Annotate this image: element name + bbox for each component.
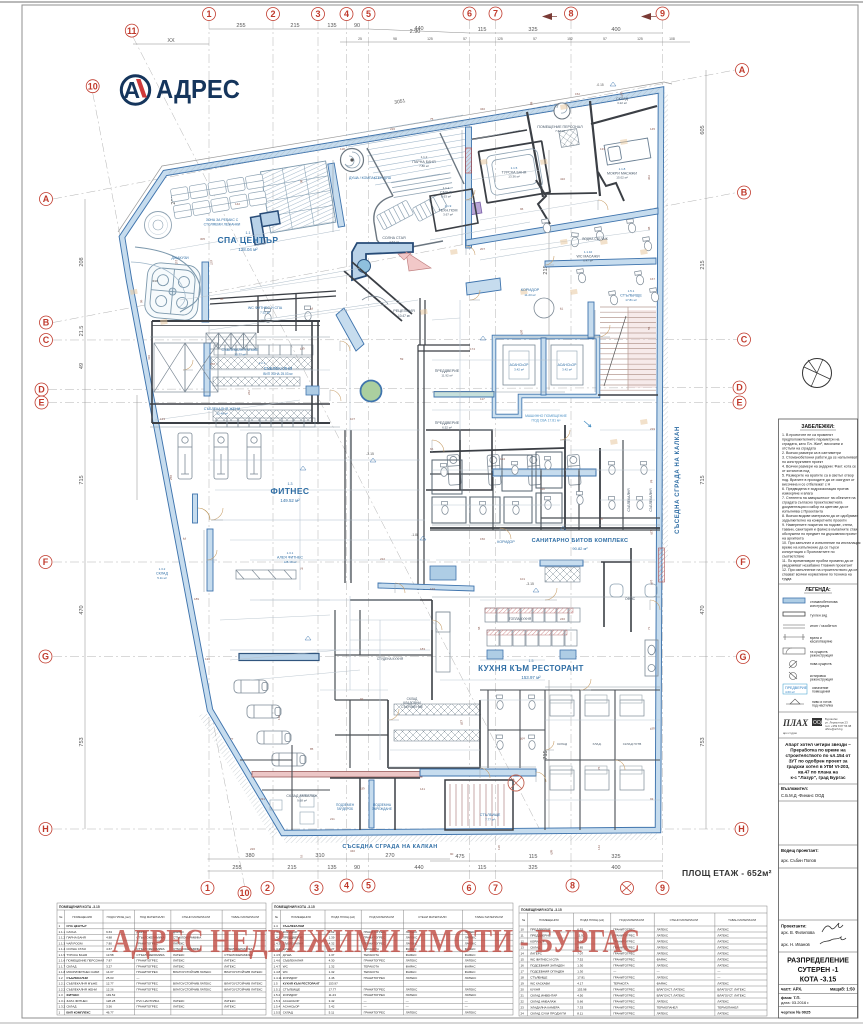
svg-text:605: 605	[700, 125, 706, 134]
svg-text:ВИП КОМПЛЕКС: ВИП КОМПЛЕКС	[66, 1010, 91, 1014]
svg-text:152: 152	[567, 37, 573, 41]
svg-text:1.30: 1.30	[577, 963, 583, 967]
svg-text:ФИТНЕС: ФИТНЕС	[66, 993, 80, 997]
svg-text:2: 2	[270, 9, 275, 19]
svg-text:715: 715	[700, 475, 706, 484]
svg-text:3.56: 3.56	[106, 1005, 112, 1009]
svg-text:МОКРИ/ФИТНЕС КАБИ: МОКРИ/ФИТНЕС КАБИ	[66, 970, 99, 974]
svg-text:ФАЯНС: ФАЯНС	[465, 964, 477, 968]
svg-text:арх. Събин Попов: арх. Събин Попов	[781, 858, 817, 863]
svg-text:ГРАНИТОГРЕС: ГРАНИТОГРЕС	[364, 1010, 386, 1014]
svg-text:КУХНЯ: КУХНЯ	[530, 987, 540, 991]
svg-text:149.52: 149.52	[106, 993, 116, 997]
svg-text:46.77: 46.77	[106, 1010, 114, 1014]
svg-text:23: 23	[521, 1005, 525, 1009]
svg-text:КОРИДОР: КОРИДОР	[497, 540, 515, 544]
svg-text:3.22 м²: 3.22 м²	[617, 101, 627, 105]
svg-text:1.3.2: 1.3.2	[59, 1005, 66, 1009]
svg-text:ЛАТЕКС: ЛАТЕКС	[406, 987, 418, 991]
svg-text:ПОМЕЩЕНИЯ: ПОМЕЩЕНИЯ	[72, 915, 92, 919]
svg-text:1.1.8: 1.1.8	[59, 970, 66, 974]
svg-text:СЪБЛЕКАЛНЯ ЖЕНИ: СЪБЛЕКАЛНЯ ЖЕНИ	[66, 987, 96, 991]
svg-text:152: 152	[575, 92, 580, 96]
svg-text:92: 92	[360, 697, 364, 701]
svg-text:255: 255	[232, 865, 241, 871]
svg-text:—: —	[406, 999, 409, 1003]
svg-text:уведомяват незабавно Главния п: уведомяват незабавно Главния проектант	[782, 564, 853, 568]
svg-text:215: 215	[287, 865, 296, 871]
svg-text:съответствие: съответствие	[782, 555, 804, 559]
svg-text:135: 135	[327, 23, 336, 29]
svg-text:№: №	[275, 915, 278, 919]
svg-text:1.2.1: 1.2.1	[59, 982, 66, 986]
svg-text:ЛАТЕКС: ЛАТЕКС	[717, 981, 729, 985]
svg-text:400: 400	[611, 27, 620, 33]
svg-text:6: 6	[467, 9, 472, 19]
svg-text:ПОД СВА 17.81 м²: ПОД СВА 17.81 м²	[532, 418, 562, 422]
svg-text:255: 255	[236, 23, 245, 29]
svg-text:2. Всички размери са в сантиме: 2. Всички размери са в сантиметри	[782, 451, 841, 455]
svg-text:17: 17	[521, 969, 525, 973]
svg-text:55: 55	[647, 326, 651, 330]
svg-text:3.27: 3.27	[106, 964, 112, 968]
svg-text:конструкция: конструкция	[810, 604, 829, 608]
svg-text:753: 753	[79, 737, 85, 746]
svg-text:ЛАТЕКС: ЛАТЕКС	[657, 951, 669, 955]
svg-text:235: 235	[360, 786, 366, 791]
svg-text:ЛАТЕКС: ЛАТЕКС	[717, 1011, 729, 1015]
svg-text:ТЕРАКОТА: ТЕРАКОТА	[364, 970, 379, 974]
svg-text:ЛАТЕКС: ЛАТЕКС	[465, 976, 477, 980]
svg-text:262: 262	[247, 390, 251, 395]
svg-text:142: 142	[235, 202, 240, 206]
svg-text:изпълнява с Проектанта: изпълнява с Проектанта	[782, 510, 823, 514]
svg-text:128.28: 128.28	[106, 999, 116, 1003]
svg-text:ТОПЛА КУХНЯ: ТОПЛА КУХНЯ	[509, 617, 532, 621]
svg-text:D: D	[38, 385, 45, 395]
svg-text:93: 93	[650, 797, 654, 801]
svg-text:2.90: 2.90	[410, 29, 421, 35]
svg-text:дата: 03.2016 г.: дата: 03.2016 г.	[781, 1000, 809, 1005]
svg-text:ГРАНИТОГРЕС: ГРАНИТОГРЕС	[136, 1005, 158, 1009]
svg-text:B: B	[43, 318, 50, 328]
svg-text:реконструкция: реконструкция	[810, 653, 833, 657]
svg-text:305: 305	[200, 237, 205, 241]
svg-text:строителството по чл.154 от: строителството по чл.154 от	[785, 753, 851, 758]
svg-text:ПАРНА БАНЯ: ПАРНА БАНЯ	[66, 936, 85, 940]
svg-text:ЗАБЕЛЕЖКИ:: ЗАБЕЛЕЖКИ:	[801, 424, 835, 430]
svg-text:ПРЕДДВЕРИЕ: ПРЕДДВЕРИЕ	[435, 369, 460, 373]
svg-text:8: 8	[568, 9, 573, 19]
svg-text:10: 10	[239, 888, 249, 898]
svg-text:ГРАНИТОГРЕС: ГРАНИТОГРЕС	[613, 963, 635, 967]
svg-text:12.26: 12.26	[106, 987, 114, 991]
svg-text:H: H	[738, 824, 745, 834]
svg-text:101: 101	[520, 577, 525, 581]
svg-text:СКЛАД АМБАЛАЖ: СКЛАД АМБАЛАЖ	[286, 794, 318, 798]
svg-text:11. По времениврат пробни пром: 11. По времениврат пробни промени да се	[782, 559, 853, 563]
svg-text:85: 85	[310, 747, 314, 751]
svg-text:консултация с Проектантите по: консултация с Проектантите по	[782, 550, 835, 554]
svg-text:отстъпи на сградата: отстъпи на сградата	[782, 447, 816, 451]
svg-text:СКЛАД ИНВЕНТАР: СКЛАД ИНВЕНТАР	[530, 993, 557, 997]
svg-text:ЛАТЕКС: ЛАТЕКС	[717, 927, 729, 931]
svg-text:5.66: 5.66	[577, 999, 583, 1003]
svg-text:АСАНСЬОР: АСАНСЬОР	[283, 1005, 300, 1009]
svg-text:ФАЯНС: ФАЯНС	[406, 970, 418, 974]
svg-text:118: 118	[340, 147, 345, 151]
svg-text:—: —	[613, 969, 616, 973]
svg-text:ГРАНИТОГРЕС: ГРАНИТОГРЕС	[136, 982, 158, 986]
svg-text:-0.15: -0.15	[596, 83, 603, 87]
svg-text:предположителните параметри на: предположителните параметри на	[782, 438, 839, 442]
svg-text:1.2.1: 1.2.1	[259, 361, 266, 365]
svg-text:1.1.2: 1.1.2	[59, 936, 66, 940]
svg-text:5. Размерите на вратите са в с: 5. Размерите на вратите са в светъл отво…	[782, 474, 854, 478]
svg-text:7: 7	[493, 883, 498, 893]
svg-text:90: 90	[450, 852, 454, 856]
svg-text:ТЕРАКОТА: ТЕРАКОТА	[613, 981, 628, 985]
svg-text:измокряне и влага: измокряне и влага	[782, 492, 813, 496]
svg-text:ГРАНИТОГРЕС: ГРАНИТОГРЕС	[364, 987, 386, 991]
svg-text:C: C	[741, 335, 748, 345]
svg-text:1.1.7: 1.1.7	[59, 964, 66, 968]
svg-text:к-с "Лазур", град Бургас: к-с "Лазур", град Бургас	[790, 775, 845, 780]
svg-text:ПОМЕЩЕНИЯ КОТА -3.15: ПОМЕЩЕНИЯ КОТА -3.15	[521, 908, 562, 912]
svg-text:ЛАТЕКС: ЛАТЕКС	[657, 999, 669, 1003]
svg-text:110: 110	[540, 487, 545, 491]
svg-text:САНИТАРНО БИТОВ КОМПЛЕКС: САНИТАРНО БИТОВ КОМПЛЕКС	[532, 538, 629, 544]
svg-text:СТЪЛБИЩЕ: СТЪЛБИЩЕ	[620, 294, 642, 298]
svg-text:ЛАТЕКС: ЛАТЕКС	[717, 939, 729, 943]
svg-text:189: 189	[194, 597, 199, 601]
svg-text:ГРАНИТОГРЕС: ГРАНИТОГРЕС	[364, 976, 386, 980]
svg-text:ЛАТЕКС: ЛАТЕКС	[406, 976, 418, 980]
svg-text:1.1: 1.1	[246, 231, 251, 235]
svg-text:ФИТНЕС: ФИТНЕС	[271, 486, 310, 496]
svg-text:сградата съгласно проектосметн: сградата съгласно проектосметната	[782, 501, 842, 505]
svg-text:—: —	[136, 976, 139, 980]
svg-text:ПОД МАТЕРИАЛИ: ПОД МАТЕРИАЛИ	[140, 915, 165, 919]
svg-text:СТЪЛБИЩЕ: СТЪЛБИЩЕ	[480, 813, 501, 817]
svg-text:14.07: 14.07	[106, 970, 114, 974]
svg-text:1.32: 1.32	[329, 970, 335, 974]
svg-text:753: 753	[700, 737, 706, 746]
svg-text:ВЛАГОУСТОЙЧИВ ЛАТЕКС: ВЛАГОУСТОЙЧИВ ЛАТЕКС	[173, 987, 212, 991]
svg-text:—: —	[717, 969, 720, 973]
svg-text:215: 215	[700, 260, 706, 269]
svg-text:167: 167	[650, 277, 655, 281]
svg-text:РАЗПРЕДЕЛЕНИЕ: РАЗПРЕДЕЛЕНИЕ	[787, 958, 849, 965]
svg-text:СКЛАД: СКЛАД	[66, 964, 76, 968]
svg-text:1.1.4: 1.1.4	[59, 947, 66, 951]
svg-text:СЪБЛЕКАЛНЯ МЪЖЕ: СЪБЛЕКАЛНЯ МЪЖЕ	[66, 982, 97, 986]
svg-text:документация и избор на цветов: документация и избор на цветове да се	[782, 505, 848, 509]
svg-text:арх. Н. Иванов: арх. Н. Иванов	[781, 942, 811, 947]
svg-text:11: 11	[127, 26, 137, 36]
svg-text:135: 135	[300, 346, 306, 351]
svg-text:57: 57	[533, 37, 537, 41]
svg-text:5.11: 5.11	[329, 1010, 335, 1014]
svg-text:ПОМЕЩЕНИЕ ПЕРСОНАЛ: ПОМЕЩЕНИЕ ПЕРСОНАЛ	[66, 959, 104, 963]
svg-text:1.30: 1.30	[577, 969, 583, 973]
svg-text:Възложител:: Възложител:	[781, 786, 808, 791]
svg-text:5.11 м²: 5.11 м²	[157, 576, 167, 580]
svg-text:ПОДСЕВНИЯ ОГЛАДЕН: ПОДСЕВНИЯ ОГЛАДЕН	[530, 969, 564, 973]
svg-text:3.42: 3.42	[329, 999, 335, 1003]
svg-text:1.5: 1.5	[274, 982, 279, 986]
svg-text:ПОДСЕВНИЯ ЗАПАДЕН: ПОДСЕВНИЯ ЗАПАДЕН	[530, 963, 564, 967]
svg-text:90: 90	[354, 865, 360, 871]
svg-text:АСАНСЬОР: АСАНСЬОР	[558, 363, 578, 367]
svg-text:4.50: 4.50	[577, 993, 583, 997]
svg-text:325: 325	[528, 27, 537, 33]
svg-text:ПОДЗ.ПЛОЩ (м2): ПОДЗ.ПЛОЩ (м2)	[580, 918, 604, 922]
svg-text:ВЛАГОУСТОЙЧИВ ЛАТЕКС: ВЛАГОУСТОЙЧИВ ЛАТЕКС	[173, 970, 212, 974]
svg-text:153.98: 153.98	[577, 987, 587, 991]
svg-text:215: 215	[290, 23, 299, 29]
svg-text:A: A	[43, 194, 50, 204]
svg-text:PVC НАСТИЛКА: PVC НАСТИЛКА	[136, 999, 159, 1003]
svg-text:тавани, санитария и фаянс в къ: тавани, санитария и фаянс в къпалните ст…	[782, 528, 857, 532]
svg-text:ЛАТЕКС: ЛАТЕКС	[657, 963, 669, 967]
svg-text:ЗАРЕЖДАНЕ: ЗАРЕЖДАНЕ	[372, 807, 392, 811]
svg-text:8.63 м²: 8.63 м²	[441, 195, 451, 199]
svg-text:13.36 м²: 13.36 м²	[508, 175, 519, 179]
svg-text:211: 211	[330, 817, 335, 821]
svg-text:1.3: 1.3	[59, 993, 64, 997]
svg-text:ЗОНА ЗА РЕЛАКС С: ЗОНА ЗА РЕЛАКС С	[206, 218, 239, 222]
svg-text:470: 470	[700, 605, 706, 614]
svg-text:1.3.1: 1.3.1	[59, 999, 66, 1003]
svg-text:174: 174	[470, 347, 475, 351]
svg-text:1.2: 1.2	[59, 976, 64, 980]
svg-text:1.1.6: 1.1.6	[59, 959, 66, 963]
svg-text:470: 470	[79, 605, 85, 614]
svg-text:под. Вратите в проходите да се: под. Вратите в проходите да се осигурят …	[782, 478, 855, 482]
svg-text:ЛАТЕКС: ЛАТЕКС	[657, 933, 669, 937]
svg-text:153.97: 153.97	[329, 982, 339, 986]
svg-text:11.23: 11.23	[329, 993, 337, 997]
svg-text:-3.15: -3.15	[366, 452, 374, 456]
svg-text:Водещ проектант:: Водещ проектант:	[781, 848, 819, 853]
svg-text:1.1.5: 1.1.5	[511, 166, 518, 170]
svg-text:ЛАТЕКС: ЛАТЕКС	[173, 964, 185, 968]
svg-text:115: 115	[478, 865, 487, 871]
svg-text:СЪБЛЕКАЛНЯ ЖЕНИ: СЪБЛЕКАЛНЯ ЖЕНИ	[204, 407, 241, 411]
svg-text:КУХНЯ КЪМ РЕСТОРАНТ: КУХНЯ КЪМ РЕСТОРАНТ	[478, 664, 584, 673]
svg-text:1.5.5: 1.5.5	[274, 1010, 281, 1014]
svg-text:ВЛАГОУСТОЙЧИВ ЛАТЕКС: ВЛАГОУСТОЙЧИВ ЛАТЕКС	[224, 982, 263, 986]
svg-text:1.4.8: 1.4.8	[274, 970, 281, 974]
svg-text:СУТЕРЕН -1: СУТЕРЕН -1	[798, 967, 839, 974]
svg-text:1.3: 1.3	[288, 482, 293, 486]
svg-text:135: 135	[327, 865, 336, 871]
svg-text:9: 9	[660, 9, 665, 19]
svg-text:кв.47 по плана на: кв.47 по плана на	[798, 770, 838, 775]
svg-text:1.1.5: 1.1.5	[59, 953, 66, 957]
svg-text:СТУДЕНА КУХНЯ: СТУДЕНА КУХНЯ	[377, 657, 404, 661]
svg-text:градски хотел в УПИ VI-203,: градски хотел в УПИ VI-203,	[787, 764, 850, 769]
svg-text:D: D	[736, 383, 743, 393]
svg-text:219: 219	[650, 427, 655, 431]
svg-text:—: —	[406, 1005, 409, 1009]
svg-text:реконструкция: реконструкция	[810, 677, 833, 681]
svg-text:ЛАТЕКС: ЛАТЕКС	[465, 1010, 477, 1014]
svg-text:715: 715	[79, 475, 85, 484]
svg-text:F: F	[43, 557, 49, 567]
svg-text:КОРИДОР: КОРИДОР	[283, 976, 298, 980]
svg-text:153.97 м²: 153.97 м²	[521, 675, 541, 680]
svg-text:ЗАЛА ФИТНЕС: ЗАЛА ФИТНЕС	[66, 999, 88, 1003]
svg-text:№: №	[522, 918, 525, 922]
svg-text:ВЛАГОУСТ. ЛАТЕКС: ВЛАГОУСТ. ЛАТЕКС	[717, 987, 746, 991]
svg-text:3.42: 3.42	[329, 1005, 335, 1009]
svg-text:—: —	[465, 999, 468, 1003]
svg-text:АЛЕЯ ФИТНЕС: АЛЕЯ ФИТНЕС	[277, 556, 303, 560]
svg-text:ЛАТЕКС: ЛАТЕКС	[657, 1011, 669, 1015]
svg-text:E: E	[736, 398, 742, 408]
svg-text:133: 133	[430, 587, 435, 591]
svg-text:71: 71	[647, 626, 651, 630]
svg-text:1.1.3: 1.1.3	[59, 941, 66, 945]
svg-text:310: 310	[315, 853, 324, 859]
svg-text:ТАВАН МАТЕРИАЛИ: ТАВАН МАТЕРИАЛИ	[728, 918, 756, 922]
svg-text:128.38 м²: 128.38 м²	[283, 560, 296, 564]
svg-text:ЛАТЕКС: ЛАТЕКС	[465, 993, 477, 997]
svg-text:7. Степента на завършеност на: 7. Степента на завършеност на обектите н…	[782, 496, 856, 500]
svg-text:150: 150	[480, 537, 485, 541]
svg-text:19: 19	[521, 981, 525, 985]
svg-text:ЧАЙ РООМ: ЧАЙ РООМ	[66, 941, 83, 945]
svg-text:1.2.2: 1.2.2	[59, 987, 66, 991]
svg-text:1.5.1: 1.5.1	[628, 289, 635, 293]
svg-text:ВОДНА СТЕЛАЖ: ВОДНА СТЕЛАЖ	[582, 237, 607, 241]
svg-text:СКЛАД: СКЛАД	[283, 1010, 293, 1014]
svg-text:СЪБЛЕКАЛНИ: СЪБЛЕКАЛНИ	[264, 366, 293, 371]
svg-text:C: C	[43, 335, 50, 345]
svg-text:СТЕНИ МАТЕРИАЛИ: СТЕНИ МАТЕРИАЛИ	[670, 918, 698, 922]
svg-text:СЪБЛЕКАЛНЯ: СЪБЛЕКАЛНЯ	[649, 488, 653, 512]
svg-text:6. Предвидена е хидроизолация: 6. Предвидена е хидроизолация против	[782, 487, 849, 491]
svg-text:арх.студио: арх.студио	[783, 731, 797, 735]
svg-text:СОЛНА СТАЯ: СОЛНА СТАЯ	[66, 947, 85, 951]
svg-text:98: 98	[393, 37, 397, 41]
svg-text:СЪБЛЕКАЛНЯ: СЪБЛЕКАЛНЯ	[627, 488, 631, 512]
svg-text:АСАНСЬОР: АСАНСЬОР	[510, 363, 530, 367]
svg-text:4: 4	[344, 881, 349, 891]
svg-text:АДРЕС: АДРЕС	[156, 74, 240, 104]
svg-text:F: F	[740, 557, 746, 567]
svg-text:440: 440	[414, 865, 423, 871]
svg-text:СКЛАД АМБАЛАЖ: СКЛАД АМБАЛАЖ	[530, 999, 556, 1003]
svg-text:21.5: 21.5	[79, 326, 85, 337]
svg-text:WC КАСКАВИ: WC КАСКАВИ	[530, 981, 550, 985]
svg-text:B: B	[741, 188, 748, 198]
svg-text:3.42 м²: 3.42 м²	[514, 368, 524, 372]
svg-text:каса/отваряне: каса/отваряне	[810, 639, 833, 643]
svg-text:75: 75	[430, 117, 434, 121]
svg-text:7.80 м²: 7.80 м²	[419, 164, 429, 168]
svg-text:част: АРХ.: част: АРХ.	[781, 987, 802, 992]
svg-text:3.67 м²: 3.67 м²	[443, 213, 453, 217]
svg-text:207: 207	[480, 247, 485, 251]
svg-text:ГРАНИТОГРЕС: ГРАНИТОГРЕС	[136, 970, 158, 974]
svg-text:7.33: 7.33	[577, 1005, 583, 1009]
svg-text:1.3.1: 1.3.1	[287, 551, 294, 555]
svg-text:ЛАТЕКС: ЛАТЕКС	[717, 999, 729, 1003]
svg-text:ЛАТЕКС: ЛАТЕКС	[173, 999, 185, 1003]
svg-text:СЪСЕДНА СГРАДА НА КАЛКАН: СЪСЕДНА СГРАДА НА КАЛКАН	[342, 844, 437, 850]
svg-text:21: 21	[521, 993, 525, 997]
svg-text:17.81: 17.81	[577, 975, 585, 979]
svg-text:118: 118	[497, 845, 501, 850]
svg-text:12.77: 12.77	[106, 982, 114, 986]
svg-text:125: 125	[637, 37, 643, 41]
svg-text:—: —	[364, 1005, 367, 1009]
svg-text:246: 246	[560, 617, 565, 621]
svg-text:204: 204	[520, 736, 526, 741]
svg-text:ЛАТЕКС: ЛАТЕКС	[657, 939, 669, 943]
svg-text:G: G	[42, 652, 49, 662]
svg-text:57: 57	[603, 37, 607, 41]
svg-text:410: 410	[560, 177, 565, 181]
svg-text:13.46 м²: 13.46 м²	[216, 412, 227, 416]
svg-text:4.46: 4.46	[329, 976, 335, 980]
svg-text:Проектанти:: Проектанти:	[781, 924, 806, 929]
svg-text:1: 1	[206, 9, 211, 19]
svg-text:задължително на конкретните пр: задължително на конкретните проекти	[782, 519, 846, 523]
svg-text:—: —	[364, 999, 367, 1003]
svg-text:15.02 м²: 15.02 м²	[616, 176, 627, 180]
svg-text:10: 10	[88, 81, 98, 91]
svg-text:1.1.9: 1.1.9	[445, 204, 452, 208]
svg-text:С.Б.М.Д -Финанс ООД: С.Б.М.Д -Финанс ООД	[781, 793, 824, 798]
svg-text:WC ФИТНЕС И СПА: WC ФИТНЕС И СПА	[248, 306, 283, 310]
svg-text:6.52 м²: 6.52 м²	[442, 426, 452, 430]
svg-text:ЛАТЕКС: ЛАТЕКС	[717, 945, 729, 949]
svg-text:ЛАТЕКС: ЛАТЕКС	[717, 933, 729, 937]
svg-text:СТЪЛБИЩЕ: СТЪЛБИЩЕ	[283, 987, 300, 991]
svg-text:17.77: 17.77	[329, 987, 337, 991]
svg-text:3. Стоманобетонни работи да се: 3. Стоманобетонни работи да се напълнява…	[782, 456, 858, 460]
svg-text:E: E	[38, 398, 44, 408]
svg-text:149.52 м²: 149.52 м²	[280, 498, 300, 503]
svg-text:ГРАНИТОГРЕС: ГРАНИТОГРЕС	[136, 987, 158, 991]
svg-text:20: 20	[521, 987, 525, 991]
svg-text:ГРАНИТОГРЕС: ГРАНИТОГРЕС	[613, 1011, 635, 1015]
svg-text:77: 77	[230, 737, 234, 741]
svg-text:СЪБЛЕКАЛНЯ МЪЖЕ: СЪБЛЕКАЛНЯ МЪЖЕ	[221, 348, 259, 352]
svg-text:СЪСЕДНА СГРАДА НА КАЛКАН: СЪСЕДНА СГРАДА НА КАЛКАН	[675, 426, 681, 534]
svg-text:125: 125	[427, 37, 433, 41]
svg-text:по конструктивен проект: по конструктивен проект	[782, 460, 823, 464]
svg-text:226: 226	[250, 847, 255, 851]
svg-text:1: 1	[205, 883, 210, 893]
svg-text:ВЛАГОУСТ. ЛАТЕКС: ВЛАГОУСТ. ЛАТЕКС	[657, 993, 686, 997]
svg-text:25.03: 25.03	[106, 976, 114, 980]
svg-text:49: 49	[79, 363, 85, 369]
svg-text:—: —	[465, 1005, 468, 1009]
svg-text:ДЖАКУЗИ: ДЖАКУЗИ	[171, 256, 189, 260]
svg-text:СКЛАД ГОТВ: СКЛАД ГОТВ	[623, 742, 641, 746]
svg-text:СЪХРАНЕНИЕ: СЪХРАНЕНИЕ	[401, 705, 423, 709]
svg-text:4.67 м²: 4.67 м²	[389, 240, 399, 244]
svg-text:КОРИДОР: КОРИДОР	[521, 288, 540, 292]
svg-text:115: 115	[529, 854, 538, 860]
svg-text:120: 120	[205, 657, 210, 661]
svg-text:арх. В. Филипова: арх. В. Филипова	[781, 930, 815, 935]
